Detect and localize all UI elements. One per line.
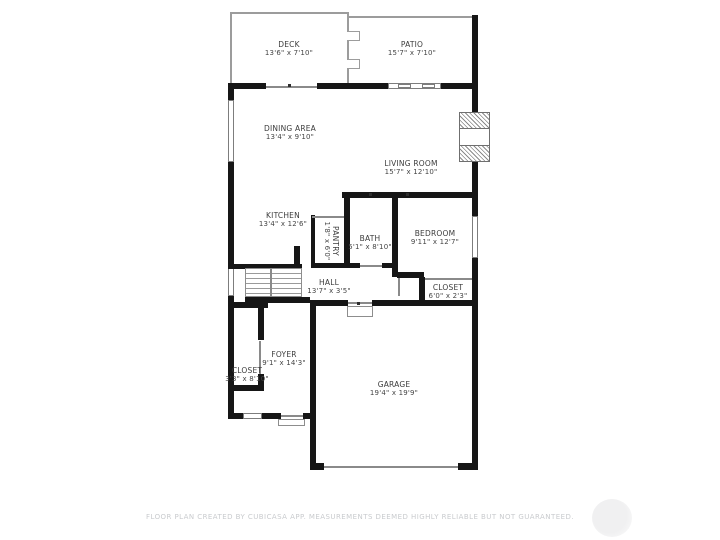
room-dims: 13'6" x 7'10" [265,49,313,58]
room-name: KITCHEN [259,211,307,220]
room-dims: 3'3" x 8'10" [225,375,269,384]
room-name: DINING AREA [264,124,316,133]
room-dims: 15'7" x 7'10" [388,49,436,58]
wall [472,15,478,112]
pantry-door-line [312,216,344,218]
fireplace-box [459,128,490,146]
cubicasa-watermark-icon [592,499,632,537]
room-name: PATIO [388,40,436,49]
window [228,268,234,296]
fireplace-hatch [459,112,490,129]
wall [317,83,388,89]
entry-door-line [281,415,303,417]
wall [419,277,425,300]
room-name: CLOSET [429,283,468,292]
room-name: PANTRY [331,222,340,261]
room-name: CLOSET [225,366,269,375]
tick-mark [406,193,409,196]
room-name: BEDROOM [411,229,459,238]
wall [228,162,234,266]
wall [228,296,234,418]
garage-entry-door-line [348,302,372,304]
window [243,413,262,419]
window [472,216,478,258]
tick-mark [369,193,372,196]
room-dims: 19'4" x 19'9" [370,389,418,398]
room-label-pantry: PANTRY 1'8" x 6'0" [322,222,340,261]
room-dims: 13'7" x 3'5" [307,287,351,296]
deck-outline-left [230,12,232,85]
room-dims: 13'4" x 9'10" [264,133,316,142]
room-label-hall: HALL 13'7" x 3'5" [307,278,351,296]
room-name: HALL [307,278,351,287]
wall [311,263,350,268]
wall [233,83,266,89]
room-label-deck: DECK 13'6" x 7'10" [265,40,313,58]
room-dims: 1'8" x 6'0" [322,222,331,261]
room-label-closet-foyer: CLOSET 3'3" x 8'10" [225,366,269,384]
room-name: DECK [265,40,313,49]
wall [228,413,243,419]
room-name: GARAGE [370,380,418,389]
closet-door-line [425,278,472,280]
room-dims: 13'4" x 12'6" [259,220,307,229]
wall [310,300,316,470]
sliding-door-line [266,86,317,88]
room-label-patio: PATIO 15'7" x 7'10" [388,40,436,58]
wall [472,162,478,216]
wall [458,463,478,470]
entry-step [278,419,305,426]
room-name: LIVING ROOM [384,159,437,168]
wall [344,192,350,267]
room-name: BATH [348,234,392,243]
deck-step [347,31,360,41]
bath-door-line [360,265,382,267]
deck-step [347,59,360,69]
wall [350,263,360,268]
fireplace-hatch [459,145,490,162]
wall [258,302,264,340]
deck-outline-top [230,12,349,14]
room-dims: 15'7" x 12'10" [384,168,437,177]
window [228,100,234,162]
bedroom-door-line [398,278,400,296]
wall [311,215,315,267]
wall [228,385,264,391]
window-mullion [422,84,435,88]
wall [294,246,300,269]
room-label-bath: BATH 5'1" x 8'10" [348,234,392,252]
room-dims: 6'0" x 2'3" [429,292,468,301]
tick-mark [288,84,291,87]
wall [472,258,478,463]
room-dims: 5'1" x 8'10" [348,243,392,252]
room-name: FOYER [262,350,306,359]
room-label-living-room: LIVING ROOM 15'7" x 12'10" [384,159,437,177]
wall [228,83,234,100]
garage-entry-step [347,306,373,317]
room-label-garage: GARAGE 19'4" x 19'9" [370,380,418,398]
garage-door-line [324,466,458,468]
staircase-divider [270,268,272,297]
room-label-bedroom: BEDROOM 9'11" x 12'7" [411,229,459,247]
room-label-closet-bedroom: CLOSET 6'0" x 2'3" [429,283,468,301]
room-label-dining-area: DINING AREA 13'4" x 9'10" [264,124,316,142]
room-label-kitchen: KITCHEN 13'4" x 12'6" [259,211,307,229]
tick-mark [357,302,360,305]
wall [316,300,348,306]
staircase [245,268,302,297]
wall [310,463,324,470]
window-mullion [398,84,411,88]
wall [392,192,398,277]
floor-plan-canvas: DECK 13'6" x 7'10" PATIO 15'7" x 7'10" D… [0,0,720,540]
room-dims: 9'11" x 12'7" [411,238,459,247]
deck-patio-divider [347,12,349,85]
patio-outline-top [349,16,473,18]
